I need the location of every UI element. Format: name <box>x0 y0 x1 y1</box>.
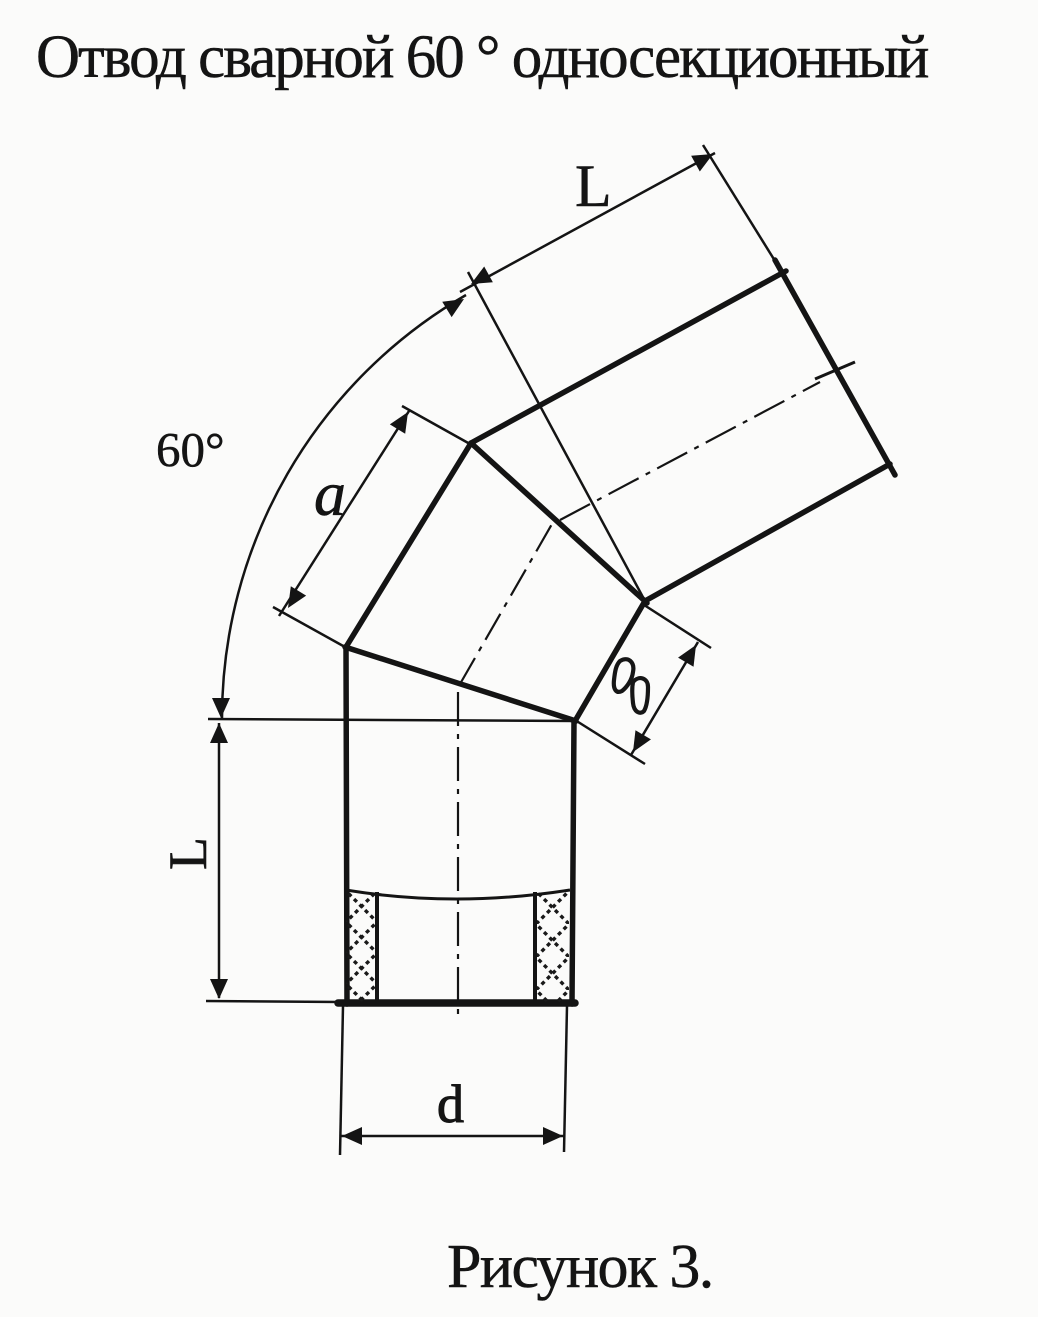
svg-text:60°: 60° <box>156 422 225 477</box>
svg-text:L: L <box>575 153 612 219</box>
svg-text:Рисунок 3.: Рисунок 3. <box>447 1233 713 1301</box>
svg-text:Отвод сварной 60 ° односекцион: Отвод сварной 60 ° односекционный <box>36 24 929 91</box>
svg-text:L: L <box>158 837 218 870</box>
svg-text:a: a <box>314 458 346 529</box>
svg-text:d: d <box>437 1074 464 1134</box>
